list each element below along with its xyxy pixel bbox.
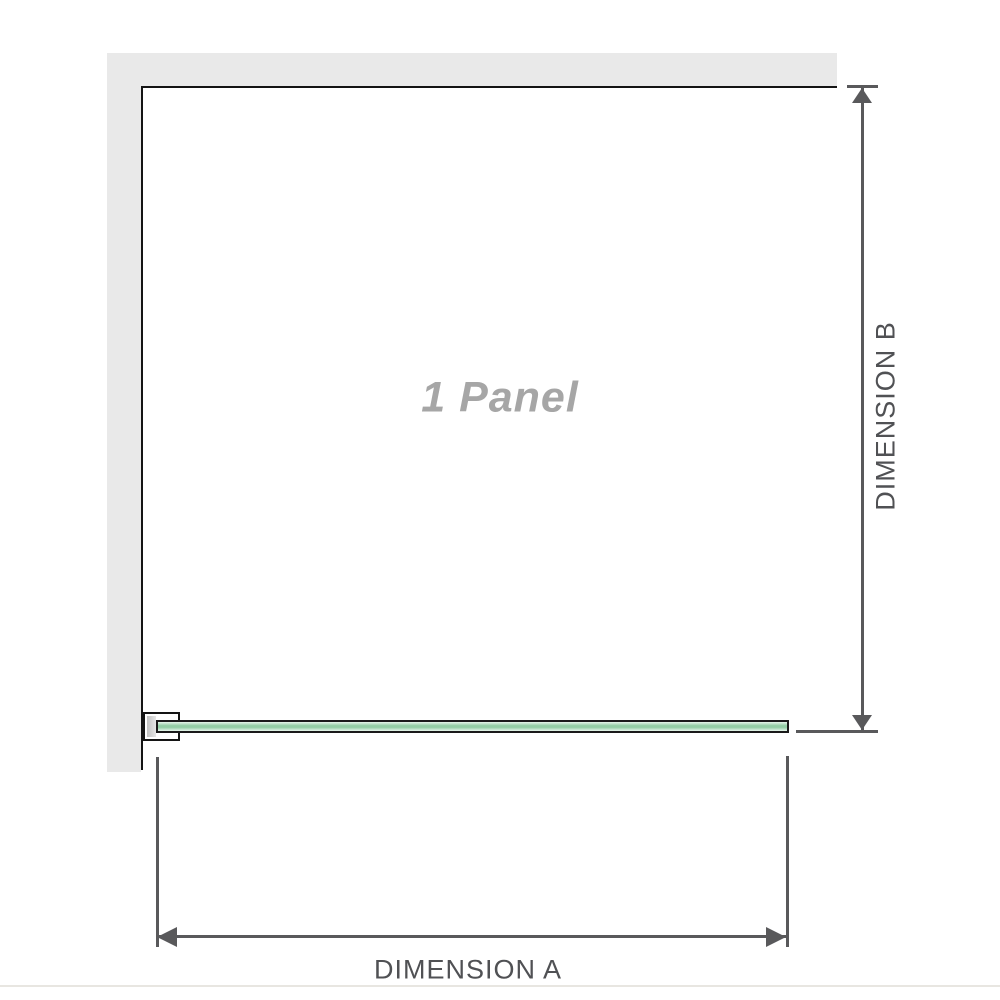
dim-b-cap-bottom (796, 730, 878, 733)
panel-outline (141, 86, 837, 770)
wall-top-strip (107, 53, 837, 86)
dim-b-line (861, 88, 864, 731)
bracket-gasket (147, 716, 156, 737)
dim-a-extension-left (156, 757, 159, 947)
dim-a-line (158, 935, 786, 938)
wall-left-strip (107, 53, 141, 772)
dim-a-arrowhead-right (766, 927, 786, 947)
dimension-a-label: DIMENSION A (374, 955, 562, 986)
panel-label: 1 Panel (421, 374, 579, 423)
glass-panel (156, 720, 789, 733)
dim-b-arrowhead-up (852, 88, 872, 103)
dimension-b-label: DIMENSION B (871, 321, 902, 511)
dim-a-arrowhead-left (157, 927, 177, 947)
dim-b-arrowhead-down (852, 715, 872, 730)
panel-dimension-diagram: 1 Panel DIMENSION B DIMENSION A (0, 0, 1000, 1000)
floor-baseline (0, 985, 1000, 987)
dim-a-extension-right (786, 756, 789, 947)
